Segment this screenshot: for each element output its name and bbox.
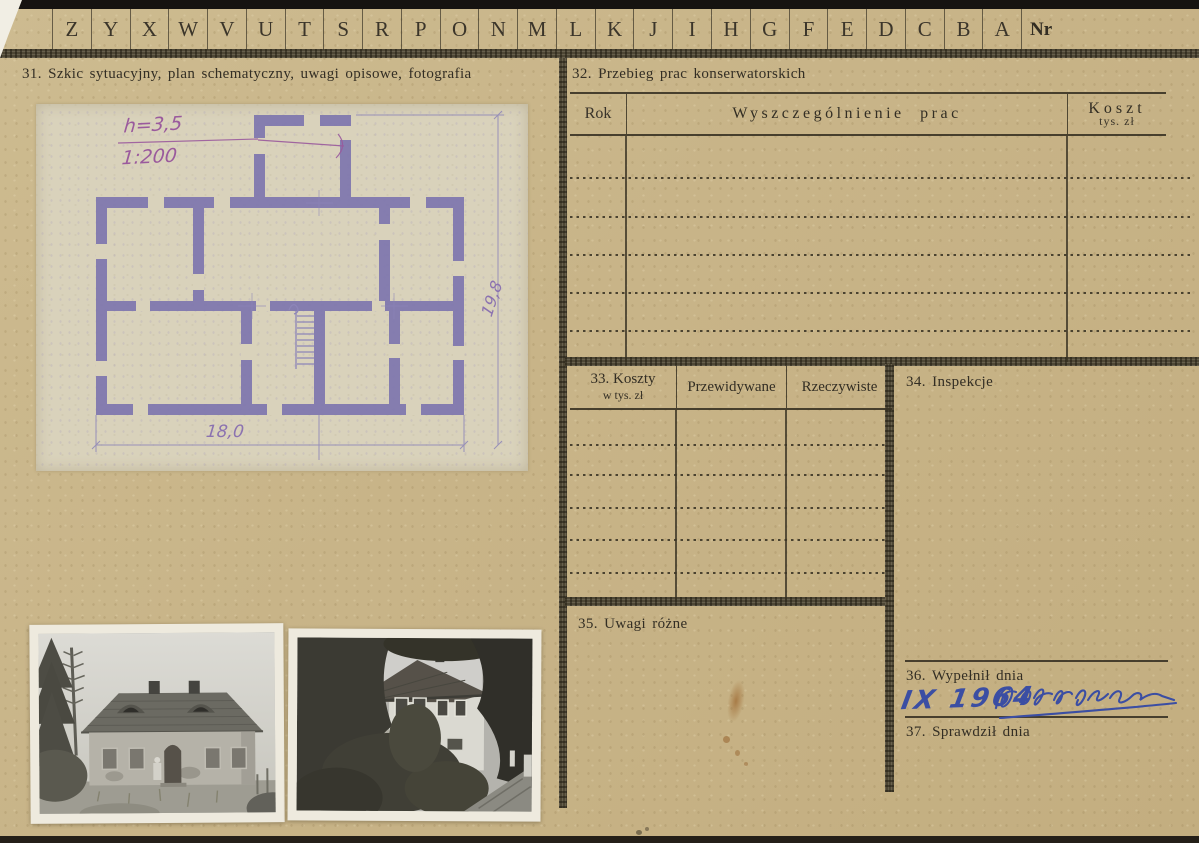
ink-stain [724, 679, 747, 723]
plan-stairs [289, 305, 314, 369]
index-letter: W [168, 9, 207, 50]
col-header-wyszczegolnienie: Wyszczególnienie prac [732, 105, 961, 123]
table32-row-line [570, 330, 1190, 332]
table32-divider-1 [625, 136, 627, 362]
photo-house-front-image [38, 632, 275, 814]
index-letter: Z [52, 9, 91, 50]
index-letter: J [633, 9, 672, 50]
table33-row-line [570, 507, 886, 509]
col-header-rok: Rok [570, 94, 626, 134]
table33-row-line [570, 474, 886, 476]
scan-edge-bottom [0, 836, 1199, 843]
table32-row-line [570, 292, 1190, 294]
table33-header: 33. Koszty w tys. zł Przewidywane Rzeczy… [570, 366, 892, 410]
col-header-przewidywane: Przewidywane [687, 379, 775, 396]
index-letter: S [323, 9, 362, 50]
smudge [636, 830, 642, 835]
floor-plan-sheet: h=3,5 1:200 18,0 19,8 [36, 104, 528, 471]
signature [990, 678, 1180, 724]
index-letter: Y [91, 9, 130, 50]
divider-main-vertical [559, 58, 567, 808]
plan-width-dimension: 18,0 [205, 422, 245, 442]
table33-row-line [570, 539, 886, 541]
table-koszty: 33. Koszty w tys. zł Przewidywane Rzeczy… [570, 366, 892, 600]
floor-plan-sketch [36, 104, 528, 471]
smudge [645, 827, 649, 831]
index-letter: E [827, 9, 866, 50]
photo-house-front [29, 623, 284, 824]
index-letter: H [711, 9, 750, 50]
index-letter: N [478, 9, 517, 50]
index-letter: K [595, 9, 634, 50]
table32-divider-2 [1066, 136, 1068, 362]
index-letter: D [866, 9, 905, 50]
index-letter: M [517, 9, 556, 50]
stain-dot [723, 736, 730, 743]
col-header-koszty-unit: w tys. zł [603, 388, 643, 403]
plan-scale-note: 1:200 [121, 145, 178, 170]
section36-top-rule [905, 660, 1168, 662]
index-letter-row: Z Y X W V U T S R P O N M L K J I H G F … [52, 9, 1022, 50]
index-letter: C [905, 9, 944, 50]
section32-title: 32. Przebieg prac konserwatorskich [572, 66, 806, 83]
section37-title: 37. Sprawdził dnia [906, 724, 1030, 741]
photo-house-garden [287, 628, 541, 821]
index-letter: I [672, 9, 711, 50]
index-letter: R [362, 9, 401, 50]
nr-label: Nr [1030, 19, 1052, 41]
index-letter: V [207, 9, 246, 50]
section31-title: 31. Szkic sytuacyjny, plan schematyczny,… [22, 66, 472, 83]
table33-body [570, 410, 892, 600]
scan-edge-top [0, 0, 1199, 9]
index-letter: P [401, 9, 440, 50]
table32-row-line [570, 177, 1190, 179]
index-letter: U [246, 9, 285, 50]
photo-house-garden-image [297, 637, 533, 811]
col-header-rzeczywiste: Rzeczywiste [802, 379, 878, 396]
table33-row-line [570, 444, 886, 446]
table-prace-konserwatorskie: Rok Wyszczególnienie prac Koszt tys. zł [570, 92, 1166, 362]
index-letter: T [285, 9, 324, 50]
table32-header: Rok Wyszczególnienie prac Koszt tys. zł [570, 92, 1166, 136]
index-letter: X [130, 9, 169, 50]
index-letter: A [982, 9, 1022, 50]
index-letter: L [556, 9, 595, 50]
index-letter: O [440, 9, 479, 50]
index-letter: G [750, 9, 789, 50]
table32-row-line [570, 216, 1190, 218]
table32-body [570, 136, 1166, 362]
divider-under-index [0, 49, 1199, 58]
col-header-koszty: 33. Koszty [591, 371, 656, 388]
table32-row-line [570, 254, 1190, 256]
index-letter: B [944, 9, 983, 50]
plan-height-note: h=3,5 [123, 112, 183, 137]
stain-dot [735, 750, 740, 756]
stain-dot [744, 762, 748, 766]
table33-row-line [570, 572, 886, 574]
conservation-index-card: Z Y X W V U T S R P O N M L K J I H G F … [0, 0, 1199, 843]
section35-title: 35. Uwagi różne [578, 616, 688, 633]
section34-title: 34. Inspekcje [906, 374, 993, 391]
index-letter: F [789, 9, 828, 50]
col-header-koszt-unit: tys. zł [1099, 116, 1135, 127]
